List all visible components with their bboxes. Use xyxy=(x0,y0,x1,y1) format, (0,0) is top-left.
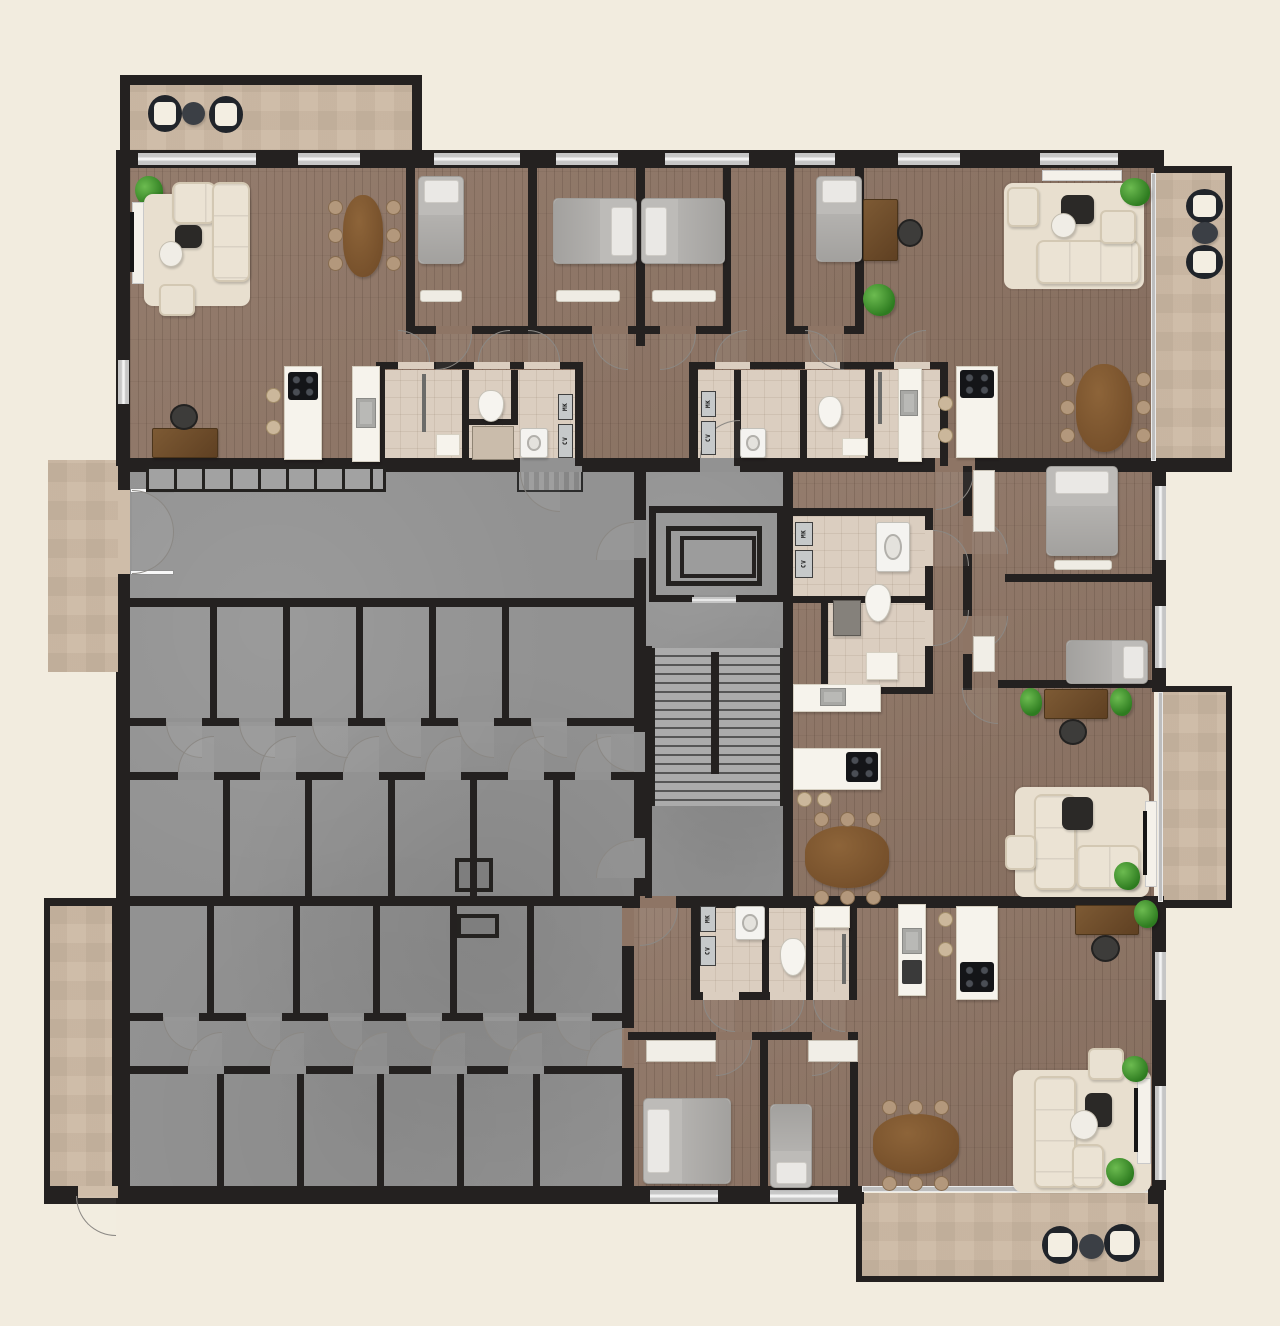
wall-bathmid-top xyxy=(783,508,933,516)
bed-double-g xyxy=(643,1098,731,1184)
wall-terrace-left xyxy=(44,900,50,1190)
gap-hall-door xyxy=(520,458,582,472)
floor-terrace-bottom-left xyxy=(48,904,114,1190)
window-right-2 xyxy=(1155,606,1166,668)
wall-balc-r-bottom xyxy=(1160,900,1232,908)
stool xyxy=(938,942,953,957)
wall-balc-tl-top xyxy=(120,75,422,85)
label-dryer: CV xyxy=(700,936,716,966)
wall-cell-d3 xyxy=(377,1074,384,1186)
glass-balcony-r xyxy=(1158,692,1163,902)
chair xyxy=(1060,372,1075,387)
sink-bath-bottom xyxy=(814,906,850,928)
chair xyxy=(882,1176,897,1191)
bed-single-d xyxy=(816,176,862,262)
chair xyxy=(934,1100,949,1115)
sink-bath2 xyxy=(842,438,868,456)
floor-storage xyxy=(130,466,642,1190)
tv-apt1 xyxy=(130,212,134,272)
wall-cell-c3 xyxy=(373,906,380,1013)
chair xyxy=(328,228,343,243)
stool xyxy=(938,912,953,927)
label-washer: MK xyxy=(558,394,573,420)
gap-b3 xyxy=(343,772,379,780)
corner-cushion xyxy=(1100,210,1136,244)
wall-cell-a4 xyxy=(429,607,436,718)
balcony-table xyxy=(1079,1234,1104,1259)
cooktop-apt3 xyxy=(960,370,994,398)
plant xyxy=(863,284,895,316)
wall-elev-left xyxy=(649,506,656,602)
gap-d2 xyxy=(270,1066,306,1074)
wall-terrace-top xyxy=(44,898,116,906)
gap-b1 xyxy=(178,772,214,780)
bench xyxy=(652,290,716,302)
wall-balc-r-right xyxy=(1226,686,1232,908)
coffee-table-mid xyxy=(1062,797,1093,830)
gap-bed-b xyxy=(592,326,628,334)
office-chair-apt3 xyxy=(897,219,923,247)
balcony-table xyxy=(1192,222,1218,244)
chair xyxy=(840,890,855,905)
gap-b5 xyxy=(508,772,544,780)
chair xyxy=(908,1176,923,1191)
gap-d4 xyxy=(431,1066,467,1074)
tv-bottom xyxy=(1134,1088,1138,1152)
gap-bath1c xyxy=(524,362,560,369)
wall-bathbot-p2 xyxy=(806,904,813,998)
stool xyxy=(938,428,953,443)
gap-d5 xyxy=(508,1066,544,1074)
sofa-chaise-bottom xyxy=(1072,1144,1104,1188)
wall-apt1-bed1 xyxy=(406,166,415,334)
wall-left-mid xyxy=(116,672,130,906)
office-chair-apt1 xyxy=(170,404,198,430)
plant xyxy=(1122,1056,1148,1082)
office-chair-bottom xyxy=(1091,935,1120,962)
side-table-apt3 xyxy=(1051,213,1076,238)
wall-cell-b5 xyxy=(553,780,560,896)
floor-balcony-right xyxy=(1160,690,1232,904)
chair xyxy=(1060,428,1075,443)
side-table-bottom xyxy=(1070,1110,1098,1140)
elevator-door xyxy=(692,597,736,603)
bed-double-b xyxy=(553,198,637,264)
gap-core-door1 xyxy=(634,520,646,558)
gap-entry-doors xyxy=(118,490,130,574)
chair xyxy=(328,200,343,215)
window-bottom-2 xyxy=(770,1190,838,1202)
wall-cell-a1 xyxy=(210,607,217,718)
chair xyxy=(840,812,855,827)
wall-apt1-bed2 xyxy=(528,166,537,334)
shower-pole xyxy=(842,934,846,984)
wall-cell-d2 xyxy=(297,1074,304,1186)
sink-bottom xyxy=(902,928,922,954)
gap-d3 xyxy=(353,1066,389,1074)
window-top-1 xyxy=(138,153,256,165)
plant xyxy=(1120,178,1150,206)
gap-b2 xyxy=(260,772,296,780)
wall-balc-br-right xyxy=(1158,1193,1164,1282)
elevator-inner xyxy=(680,536,756,578)
office-chair-mid xyxy=(1059,719,1087,745)
wall-bath2-p2 xyxy=(800,370,807,466)
window-top-3 xyxy=(434,153,520,165)
chair xyxy=(814,812,829,827)
wall-left-upper xyxy=(116,150,130,466)
ottoman-mid xyxy=(1005,835,1036,870)
desk-apt3 xyxy=(863,199,898,261)
desk-apt1 xyxy=(152,428,218,458)
wall-cell-b4 xyxy=(470,780,477,896)
wall-botbeds-div xyxy=(760,1040,768,1186)
wall-balc-tr-top xyxy=(1154,166,1232,173)
plant xyxy=(1114,862,1140,890)
wall-wcmid-left xyxy=(821,603,828,694)
window-bottom-1 xyxy=(650,1190,718,1202)
shower-pole xyxy=(422,374,426,432)
stool xyxy=(266,388,281,403)
washer xyxy=(520,428,548,458)
wall-midbed-hall xyxy=(963,466,972,690)
window-top-6 xyxy=(795,153,835,165)
stool xyxy=(938,396,953,411)
gap-bed-g xyxy=(716,1032,752,1040)
chair xyxy=(1136,428,1151,443)
wall-bottom-left xyxy=(44,1186,644,1204)
wall-cell-b2 xyxy=(305,780,312,896)
wall-balc-br-bottom xyxy=(856,1276,1164,1282)
desk-bottom xyxy=(1075,905,1139,935)
plant xyxy=(1106,1158,1134,1186)
window-left xyxy=(118,360,129,404)
label-dryer: CV xyxy=(558,424,573,458)
balcony-door-right xyxy=(1155,952,1166,1000)
washer xyxy=(735,906,765,940)
sink-apt3 xyxy=(900,390,918,416)
gap-bath1a xyxy=(398,362,434,369)
plant xyxy=(1110,688,1132,716)
gap-bed-a xyxy=(436,326,472,334)
washer xyxy=(740,428,766,458)
wall-cell-c4 xyxy=(450,906,457,1013)
wall-terrace-sep xyxy=(112,898,130,1190)
gap-bathbot2 xyxy=(770,992,806,1000)
wall-apt2-bed xyxy=(786,166,794,334)
wall-cells-a-top xyxy=(130,598,642,607)
wall-cell-c2 xyxy=(293,906,300,1013)
chair xyxy=(386,256,401,271)
wall-cell-b1 xyxy=(223,780,230,896)
cooktop-apt1 xyxy=(288,372,318,400)
shower-pole xyxy=(878,372,882,424)
balcony-chair xyxy=(209,96,243,133)
bed-double-c xyxy=(641,198,725,264)
stool xyxy=(266,420,281,435)
dining-table-mid xyxy=(805,826,889,888)
wall-cell-a2 xyxy=(283,607,290,718)
cooktop-bottom xyxy=(960,962,994,992)
dining-table-bottom xyxy=(873,1114,959,1174)
armchair-apt3 xyxy=(1007,187,1039,227)
label-washer: MK xyxy=(700,906,716,932)
gap-bathbot3 xyxy=(813,992,849,1000)
gap-b6 xyxy=(575,772,611,780)
wall-cell-d5 xyxy=(533,1074,540,1186)
sink-bath1 xyxy=(436,434,460,456)
gap-d1 xyxy=(188,1066,224,1074)
tv-console-bottom xyxy=(1137,1078,1151,1164)
chair xyxy=(1136,372,1151,387)
balcony-chair xyxy=(1104,1224,1140,1262)
bed-single-a xyxy=(418,176,464,264)
wall-bath1-p1 xyxy=(462,370,469,466)
shower xyxy=(833,600,861,636)
wall-cell-c1 xyxy=(207,906,214,1013)
wall-cell-a3 xyxy=(356,607,363,718)
tv-console-apt3 xyxy=(1042,170,1122,181)
sofa-bottom xyxy=(1034,1076,1076,1188)
balcony-chair xyxy=(1042,1226,1078,1264)
closet-tile xyxy=(472,426,514,460)
balcony-chair xyxy=(148,95,182,132)
gap-wcmid xyxy=(925,610,933,646)
gap-b4 xyxy=(425,772,461,780)
wall-bathmid-div xyxy=(793,596,933,603)
dining-table-apt3 xyxy=(1076,364,1132,452)
label-dryer: CV xyxy=(701,421,716,455)
chair xyxy=(814,890,829,905)
gap-bath2a xyxy=(715,362,750,369)
gap-bathmid xyxy=(925,530,933,566)
wall-cells-b-bottom xyxy=(130,896,634,906)
balcony-chair xyxy=(1186,245,1223,279)
desk-mid xyxy=(1044,689,1108,719)
chair xyxy=(882,1100,897,1115)
wall-stairs-left xyxy=(645,646,652,898)
balcony-table xyxy=(182,102,205,125)
gap-bathbot1 xyxy=(703,992,739,1000)
wall-midbed-div xyxy=(1005,574,1154,582)
sofa-apt1-top xyxy=(172,182,216,224)
plant xyxy=(1020,688,1042,716)
window-top-5 xyxy=(665,153,749,165)
closet xyxy=(646,1040,716,1062)
gap-bed-c xyxy=(660,326,696,334)
ottoman-bottom xyxy=(1088,1048,1124,1080)
wall-balc-br-left xyxy=(856,1193,862,1282)
chair xyxy=(1136,400,1151,415)
bench xyxy=(420,290,462,302)
chair xyxy=(866,812,881,827)
closet xyxy=(973,636,995,672)
wall-bathbot-right xyxy=(849,904,857,998)
gap-bed-h xyxy=(812,1032,848,1040)
wall-cell-d4 xyxy=(457,1074,464,1186)
wall-elev-top xyxy=(649,506,783,513)
label-dryer: CV xyxy=(795,550,813,578)
wall-cell-a5 xyxy=(502,607,509,718)
oven-bottom xyxy=(902,960,922,984)
wall-cell-d1 xyxy=(217,1074,224,1186)
wall-bathbot-left xyxy=(691,904,700,998)
closet xyxy=(973,470,995,532)
bench xyxy=(556,290,620,302)
shoe-rack xyxy=(146,466,386,492)
bed-sofa-f xyxy=(1066,640,1148,684)
ottoman-apt1 xyxy=(159,284,195,316)
floor-plan: MKCVMKCVMKCVMKCV xyxy=(0,0,1280,1326)
plant xyxy=(1134,900,1158,928)
closet xyxy=(808,1040,858,1062)
window-top-2 xyxy=(298,153,360,165)
wall-balc-tl-right xyxy=(412,75,422,158)
chair xyxy=(386,228,401,243)
label-washer: MK xyxy=(795,522,813,546)
chair xyxy=(1060,400,1075,415)
sink-apt1 xyxy=(356,398,376,428)
wall-bath1-right xyxy=(575,362,583,466)
chair xyxy=(866,890,881,905)
wall-cells-c-bottom xyxy=(130,1013,622,1021)
cooktop-mid xyxy=(846,752,878,782)
sink-wc-mid xyxy=(866,652,898,680)
sink-mid xyxy=(820,688,846,706)
tv-mid xyxy=(1143,811,1147,875)
wall-elev-right xyxy=(777,506,784,602)
wall-bath2-left xyxy=(689,362,698,466)
chair xyxy=(386,200,401,215)
stair-stringer xyxy=(711,652,719,774)
wall-core-right xyxy=(783,466,793,904)
wall-balc-r-top xyxy=(1160,686,1232,692)
stool xyxy=(797,792,812,807)
side-table-apt1 xyxy=(159,241,183,267)
window-top-8 xyxy=(1040,153,1118,165)
gap-bath1b xyxy=(474,362,510,369)
wall-balc-tr-right xyxy=(1225,166,1232,467)
terrace-door-arc xyxy=(76,1196,116,1236)
wall-bath3-right xyxy=(940,362,948,466)
sofa-apt1-main xyxy=(212,182,250,282)
glass-balcony-tr xyxy=(1151,173,1156,461)
bed-single-h xyxy=(770,1104,812,1188)
window-top-7 xyxy=(898,153,960,165)
chair xyxy=(908,1100,923,1115)
bed-double-e xyxy=(1046,466,1118,556)
chair xyxy=(934,1176,949,1191)
label-washer: MK xyxy=(701,391,716,417)
window-right-3 xyxy=(1155,1086,1166,1180)
window-right-1 xyxy=(1155,486,1166,560)
shaft-niche-2 xyxy=(457,914,499,938)
chair xyxy=(328,256,343,271)
dining-table-apt1 xyxy=(343,195,383,277)
wall-cell-b3 xyxy=(388,780,395,896)
washer xyxy=(876,522,910,572)
stool xyxy=(817,792,832,807)
wall-bath1-p2 xyxy=(511,370,518,419)
balcony-chair xyxy=(1186,189,1223,223)
window-top-4 xyxy=(556,153,618,165)
floor-balcony-left xyxy=(48,460,124,672)
gap-hall2-door xyxy=(622,908,634,946)
wall-cell-c5 xyxy=(527,906,534,1013)
sofa-apt3 xyxy=(1036,240,1140,284)
bench xyxy=(1054,560,1112,570)
